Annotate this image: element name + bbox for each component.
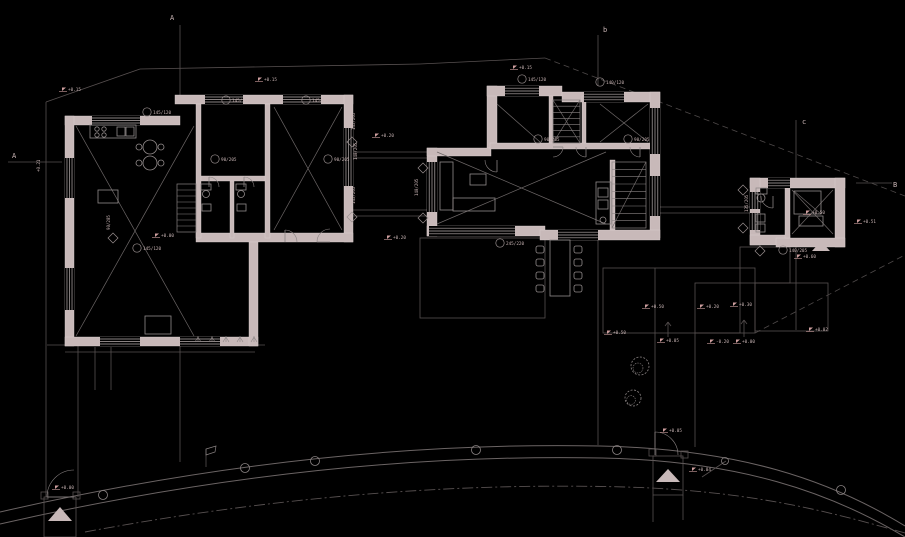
wall-segment bbox=[249, 242, 258, 346]
furniture bbox=[102, 127, 106, 131]
section-label: A bbox=[12, 152, 17, 160]
furniture bbox=[201, 184, 211, 190]
opening-tag-label: 140/120 bbox=[606, 80, 625, 86]
furniture bbox=[550, 240, 570, 296]
survey-point-circle bbox=[311, 457, 320, 466]
dimension-label: 140/205 bbox=[414, 178, 419, 196]
opening-tag-circle bbox=[624, 135, 632, 143]
dining-chair bbox=[536, 259, 544, 266]
boundary-line bbox=[46, 69, 140, 102]
wall-segment bbox=[65, 337, 258, 346]
survey-point-circle bbox=[722, 458, 729, 465]
dimension-label: 135/205 bbox=[744, 194, 749, 212]
dimension-label: 90/205 bbox=[106, 215, 111, 230]
wall-segment bbox=[196, 233, 353, 242]
door-swing-arc bbox=[655, 432, 678, 455]
opening-tag-label: 140/205 bbox=[789, 248, 808, 254]
boundary-line bbox=[668, 322, 671, 326]
opening-tag-label: 245/220 bbox=[506, 241, 525, 247]
bush-symbol bbox=[627, 396, 636, 405]
road-centerline bbox=[85, 486, 905, 533]
furniture bbox=[203, 191, 210, 198]
furniture bbox=[117, 127, 125, 136]
elevation-marker bbox=[797, 255, 801, 259]
elevation-marker bbox=[736, 340, 740, 344]
furniture bbox=[136, 144, 142, 150]
terrace-outline bbox=[603, 268, 755, 333]
wall-segment bbox=[201, 176, 265, 181]
dimension-label: +0.21 bbox=[36, 159, 41, 172]
elevation-value: +0.20 bbox=[706, 304, 719, 310]
elevation-value: +0.20 bbox=[381, 133, 394, 139]
elevation-value: +0.51 bbox=[863, 219, 876, 225]
furniture bbox=[202, 204, 211, 211]
elevation-value: +0.02 bbox=[815, 327, 828, 333]
furniture bbox=[600, 217, 606, 223]
elevation-value: +0.05 bbox=[666, 338, 679, 344]
terrace-outline bbox=[755, 283, 828, 331]
elevation-marker bbox=[806, 211, 810, 215]
furniture bbox=[98, 190, 118, 203]
cad-viewport: 145/120145/120145/120145/120145/120140/1… bbox=[0, 0, 905, 537]
elevation-marker bbox=[155, 234, 159, 238]
dining-chair bbox=[574, 285, 582, 292]
road-edge-line bbox=[0, 446, 905, 526]
diamond-marker bbox=[108, 233, 118, 243]
furniture bbox=[143, 156, 157, 170]
dining-chair bbox=[574, 272, 582, 279]
diamond-marker bbox=[418, 163, 428, 173]
door-swing-arc bbox=[485, 160, 497, 172]
door-swing-arc bbox=[47, 470, 74, 497]
furniture bbox=[95, 127, 99, 131]
elevation-marker bbox=[809, 328, 813, 332]
signpost-flag bbox=[206, 446, 216, 455]
elevation-marker bbox=[733, 303, 737, 307]
furniture bbox=[238, 191, 245, 198]
boundary-line bbox=[744, 320, 747, 324]
elevation-value: +0.04 bbox=[698, 467, 711, 473]
elevation-value: +0.60 bbox=[803, 254, 816, 260]
dimension-label: 145/205 bbox=[351, 186, 356, 204]
diamond-marker bbox=[738, 223, 748, 233]
furniture bbox=[145, 316, 171, 334]
diamond-marker bbox=[418, 213, 428, 223]
furniture bbox=[102, 133, 106, 137]
wall-segment bbox=[427, 148, 491, 156]
diagonal-line bbox=[612, 162, 646, 228]
boundary-line bbox=[665, 322, 668, 326]
furniture bbox=[143, 140, 157, 154]
elevation-value: +0.15 bbox=[68, 87, 81, 93]
boundary-line bbox=[420, 58, 545, 64]
property-boundary-dashed bbox=[755, 256, 903, 333]
elevation-marker bbox=[710, 340, 714, 344]
site-plan-drawing: 145/120145/120145/120145/120145/120140/1… bbox=[0, 0, 905, 537]
opening-tag-label: 145/120 bbox=[232, 98, 251, 104]
terrace-outline bbox=[420, 238, 545, 318]
opening-tag-circle bbox=[596, 78, 604, 86]
opening-tag-circle bbox=[133, 244, 141, 252]
section-label: B bbox=[893, 181, 897, 189]
furniture bbox=[453, 198, 495, 211]
opening-tag-label: 145/120 bbox=[153, 110, 172, 116]
furniture bbox=[237, 204, 246, 211]
dimension-label: 145/205 bbox=[351, 112, 356, 130]
elevation-marker bbox=[375, 134, 379, 138]
elevation-marker bbox=[607, 331, 611, 335]
elevation-value: +0.50 bbox=[613, 330, 626, 336]
boundary-line bbox=[140, 64, 420, 69]
elevation-marker bbox=[692, 468, 696, 472]
elevation-marker bbox=[857, 220, 861, 224]
diamond-marker bbox=[738, 185, 748, 195]
bush-symbol bbox=[633, 363, 643, 373]
furniture bbox=[598, 200, 608, 209]
elevation-marker bbox=[55, 486, 59, 490]
elevation-value: +0.50 bbox=[812, 210, 825, 216]
opening-tag-label: 145/120 bbox=[143, 246, 162, 252]
opening-tag-circle bbox=[534, 135, 542, 143]
wall-segment bbox=[776, 238, 845, 247]
wall-segment bbox=[835, 178, 845, 247]
furniture bbox=[95, 133, 99, 137]
elevation-marker bbox=[258, 78, 262, 82]
elevation-value: +0.00 bbox=[742, 339, 755, 345]
wall-segment bbox=[785, 188, 790, 238]
opening-tag-circle bbox=[496, 239, 504, 247]
diamond-marker bbox=[755, 246, 765, 256]
elevation-marker bbox=[62, 88, 66, 92]
wall-segment bbox=[265, 104, 270, 238]
elevation-value: +0.15 bbox=[264, 77, 277, 83]
opening-tag-label: 145/120 bbox=[528, 77, 547, 83]
furniture bbox=[236, 184, 246, 190]
terrace-outline bbox=[740, 247, 790, 283]
opening-tag-circle bbox=[211, 155, 219, 163]
boundary-line bbox=[741, 320, 744, 324]
furniture bbox=[136, 160, 142, 166]
elevation-value: +0.20 bbox=[393, 235, 406, 241]
survey-point-circle bbox=[99, 491, 108, 500]
opening-tag-circle bbox=[518, 75, 526, 83]
section-label: b bbox=[603, 26, 607, 34]
dimension-label: 140/205 bbox=[353, 142, 358, 160]
furniture bbox=[598, 188, 608, 197]
elevation-value: -0.20 bbox=[716, 339, 729, 345]
elevation-marker bbox=[660, 339, 664, 343]
dining-chair bbox=[536, 272, 544, 279]
opening-tag-label: 90/205 bbox=[221, 157, 237, 163]
wall-segment bbox=[230, 181, 234, 238]
furniture bbox=[158, 160, 164, 166]
elevation-marker bbox=[513, 66, 517, 70]
dining-chair bbox=[536, 246, 544, 253]
property-boundary-dashed bbox=[545, 58, 905, 196]
elevation-marker bbox=[663, 429, 667, 433]
dining-chair bbox=[574, 246, 582, 253]
road-edge-line bbox=[0, 458, 905, 537]
opening-tag-circle bbox=[324, 155, 332, 163]
opening-tag-circle bbox=[143, 108, 151, 116]
entrance-arrow-triangle bbox=[656, 469, 680, 482]
elevation-value: +0.00 bbox=[161, 233, 174, 239]
wall-segment bbox=[65, 116, 74, 346]
wall-segment bbox=[750, 178, 845, 188]
wall-segment bbox=[196, 104, 201, 238]
wall-segment bbox=[582, 96, 586, 148]
furniture bbox=[799, 216, 823, 226]
opening-tag-label: 145/120 bbox=[312, 98, 331, 104]
furniture bbox=[440, 162, 453, 210]
furniture bbox=[158, 144, 164, 150]
elevation-marker bbox=[700, 305, 704, 309]
elevation-marker bbox=[645, 305, 649, 309]
elevation-value: +0.05 bbox=[669, 428, 682, 434]
section-label: A bbox=[170, 14, 175, 22]
section-label: c bbox=[802, 118, 806, 126]
dining-chair bbox=[574, 259, 582, 266]
elevation-value: +0.00 bbox=[61, 485, 74, 491]
furniture bbox=[126, 127, 134, 136]
dining-chair bbox=[536, 285, 544, 292]
elevation-value: +0.50 bbox=[651, 304, 664, 310]
elevation-marker bbox=[387, 236, 391, 240]
elevation-value: +0.30 bbox=[739, 302, 752, 308]
diagonal-line bbox=[497, 104, 540, 142]
elevation-value: +0.15 bbox=[519, 65, 532, 71]
opening-tag-label: 90/205 bbox=[334, 157, 350, 163]
furniture bbox=[470, 174, 486, 185]
opening-tag-label: 90/205 bbox=[634, 137, 650, 143]
opening-tag-label: 90/205 bbox=[544, 137, 560, 143]
